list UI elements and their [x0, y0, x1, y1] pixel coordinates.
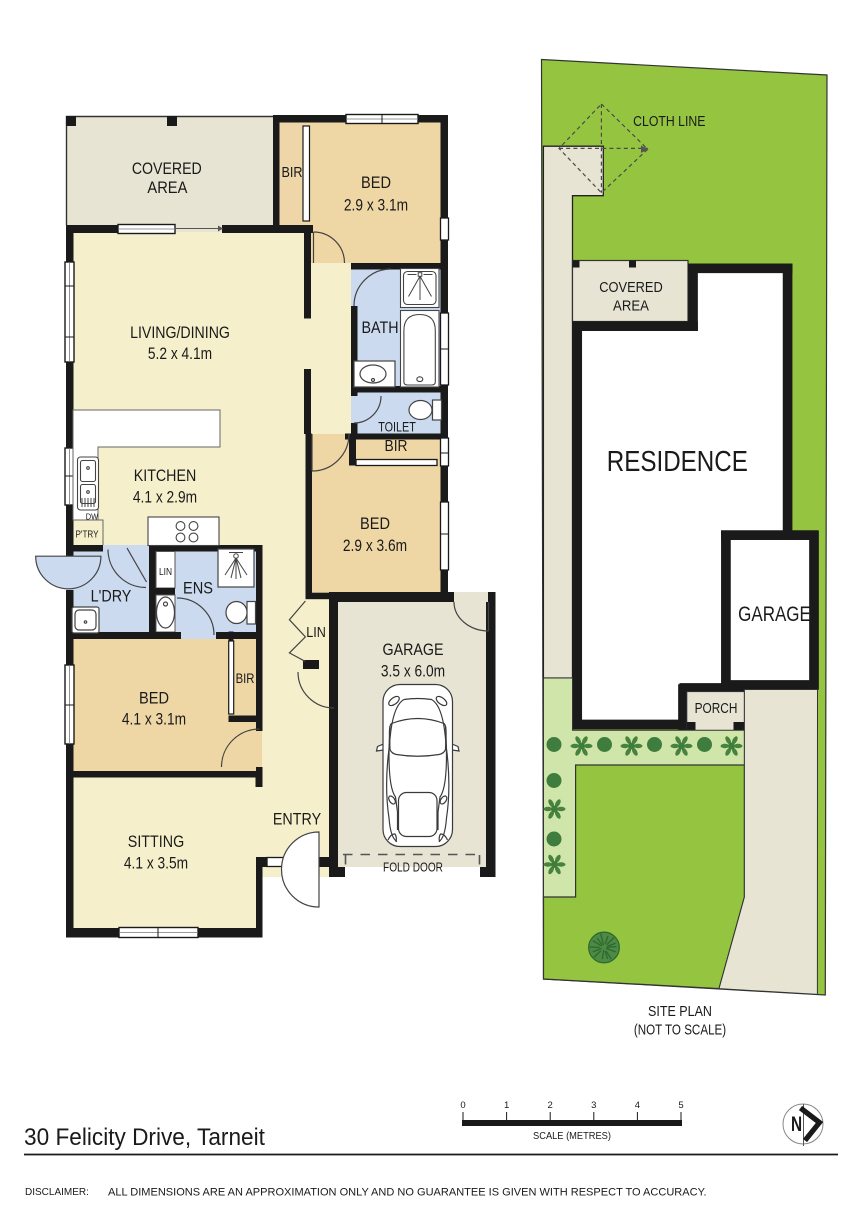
svg-text:L'DRY: L'DRY: [91, 587, 132, 605]
svg-text:4.1 x 3.5m: 4.1 x 3.5m: [124, 854, 188, 873]
svg-text:3: 3: [591, 1100, 596, 1111]
svg-text:SITE PLAN: SITE PLAN: [648, 1002, 712, 1019]
svg-text:DW: DW: [86, 512, 99, 522]
svg-text:BATH: BATH: [361, 319, 398, 337]
svg-text:4.1 x 2.9m: 4.1 x 2.9m: [133, 488, 197, 507]
svg-text:LIN: LIN: [306, 624, 326, 640]
svg-text:BIR: BIR: [385, 438, 408, 455]
svg-text:2: 2: [548, 1100, 553, 1111]
svg-text:SITTING: SITTING: [128, 833, 184, 851]
svg-text:LIN: LIN: [159, 566, 172, 577]
svg-text:30 Felicity Drive, Tarneit: 30 Felicity Drive, Tarneit: [24, 1123, 265, 1150]
svg-text:BIR: BIR: [281, 164, 302, 180]
svg-text:BED: BED: [139, 690, 169, 708]
svg-text:AREA: AREA: [613, 297, 649, 314]
svg-text:P'TRY: P'TRY: [76, 529, 100, 540]
svg-text:4.1 x 3.1m: 4.1 x 3.1m: [122, 710, 186, 729]
svg-text:KITCHEN: KITCHEN: [134, 467, 196, 485]
svg-text:LIVING/DINING: LIVING/DINING: [130, 324, 230, 342]
svg-text:5: 5: [678, 1100, 683, 1111]
svg-text:BIR: BIR: [236, 671, 255, 686]
svg-text:2.9 x 3.1m: 2.9 x 3.1m: [344, 196, 408, 215]
svg-text:3.5 x 6.0m: 3.5 x 6.0m: [381, 662, 445, 681]
svg-text:COVERED: COVERED: [132, 160, 202, 178]
svg-text:RESIDENCE: RESIDENCE: [607, 445, 748, 477]
svg-text:SCALE (METRES): SCALE (METRES): [533, 1131, 611, 1143]
svg-text:TOILET: TOILET: [378, 420, 416, 435]
svg-text:GARAGE: GARAGE: [382, 641, 443, 659]
svg-text:FOLD DOOR: FOLD DOOR: [383, 860, 443, 875]
svg-text:AREA: AREA: [147, 179, 188, 197]
svg-text:BED: BED: [361, 174, 391, 192]
svg-text:0: 0: [460, 1100, 465, 1111]
svg-text:COVERED: COVERED: [599, 278, 662, 295]
svg-text:5.2 x 4.1m: 5.2 x 4.1m: [148, 345, 212, 364]
svg-text:BED: BED: [360, 515, 390, 533]
svg-text:1: 1: [504, 1100, 509, 1111]
svg-text:2.9 x 3.6m: 2.9 x 3.6m: [343, 537, 407, 556]
svg-text:4: 4: [635, 1100, 640, 1111]
svg-text:N: N: [791, 1112, 802, 1136]
svg-text:ENTRY: ENTRY: [273, 810, 322, 828]
svg-text:GARAGE: GARAGE: [738, 603, 811, 626]
svg-text:ALL DIMENSIONS ARE AN APPROXIM: ALL DIMENSIONS ARE AN APPROXIMATION ONLY…: [108, 1186, 707, 1198]
svg-text:CLOTH LINE: CLOTH LINE: [633, 113, 705, 129]
svg-text:ENS: ENS: [183, 580, 213, 598]
svg-text:DISCLAIMER:: DISCLAIMER:: [25, 1187, 89, 1198]
svg-text:PORCH: PORCH: [695, 700, 738, 717]
svg-text:(NOT TO SCALE): (NOT TO SCALE): [634, 1021, 726, 1038]
